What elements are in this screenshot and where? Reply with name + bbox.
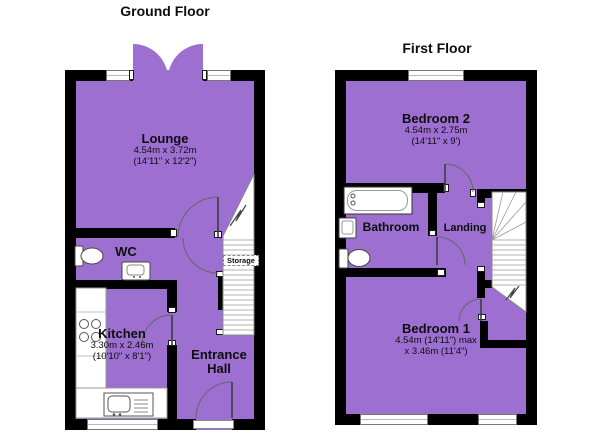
room-label-entrance-hall: Entrance Hall (179, 348, 259, 376)
sink-icon (122, 262, 150, 280)
bathtub-icon (344, 187, 412, 214)
room-name: Bedroom 1 (346, 322, 526, 336)
room-label-bedroom1: Bedroom 1 4.54m (14'11") max x 3.46m (11… (346, 322, 526, 357)
room-label-storage: Storage (223, 255, 259, 266)
room-label-lounge: Lounge 4.54m x 3.72m (14'11" x 12'2") (95, 132, 235, 167)
room-name: Bathroom (354, 220, 428, 234)
door-leaf (172, 164, 481, 418)
ground-floor-title: Ground Floor (65, 3, 265, 19)
room-name: WC (105, 245, 147, 259)
toilet-icon (339, 249, 370, 268)
staircase (492, 192, 526, 312)
toilet-icon (75, 246, 103, 266)
room-dimensions-imperial: (10'10" x 8'1") (74, 352, 170, 363)
room-name: Landing (432, 221, 498, 235)
room-dimensions-metric: 4.54m x 3.72m (95, 146, 235, 157)
room-label-wc: WC (105, 245, 147, 259)
room-name: Kitchen (74, 327, 170, 341)
room-dimensions-line1: 4.54m (14'11") max (346, 336, 526, 347)
first-floor-title: First Floor (337, 40, 537, 56)
room-label-kitchen: Kitchen 3.30m x 2.46m (10'10" x 8'1") (74, 327, 170, 362)
room-dimensions-line2: x 3.46m (11'4") (346, 347, 526, 358)
room-label-bedroom2: Bedroom 2 4.54m x 2.75m (14'11" x 9') (350, 112, 522, 147)
room-label-bathroom: Bathroom (354, 220, 428, 234)
room-name: Bedroom 2 (350, 112, 522, 126)
room-name: Entrance Hall (179, 348, 259, 376)
room-dimensions-metric: 3.30m x 2.46m (74, 341, 170, 352)
room-dimensions-metric: 4.54m x 2.75m (350, 126, 522, 137)
door-swing-arc (142, 164, 481, 418)
kitchen-sink-icon (104, 393, 153, 416)
room-name: Lounge (95, 132, 235, 146)
room-label-landing: Landing (432, 221, 498, 235)
room-dimensions-imperial: (14'11" x 12'2") (95, 157, 235, 168)
room-dimensions-imperial: (14'11" x 9') (350, 137, 522, 148)
plan-symbols (0, 0, 600, 436)
